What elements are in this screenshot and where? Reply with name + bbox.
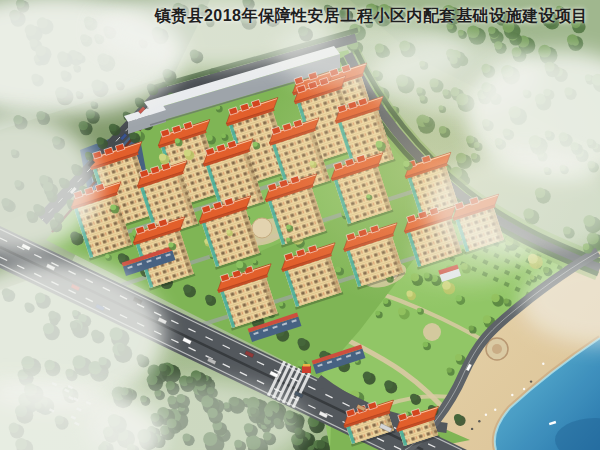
- photo-wash: [0, 0, 600, 450]
- aerial-rendering: [0, 0, 600, 450]
- rendering-stage: 镇赉县2018年保障性安居工程小区内配套基础设施建设项目: [0, 0, 600, 450]
- project-title: 镇赉县2018年保障性安居工程小区内配套基础设施建设项目: [154, 6, 588, 27]
